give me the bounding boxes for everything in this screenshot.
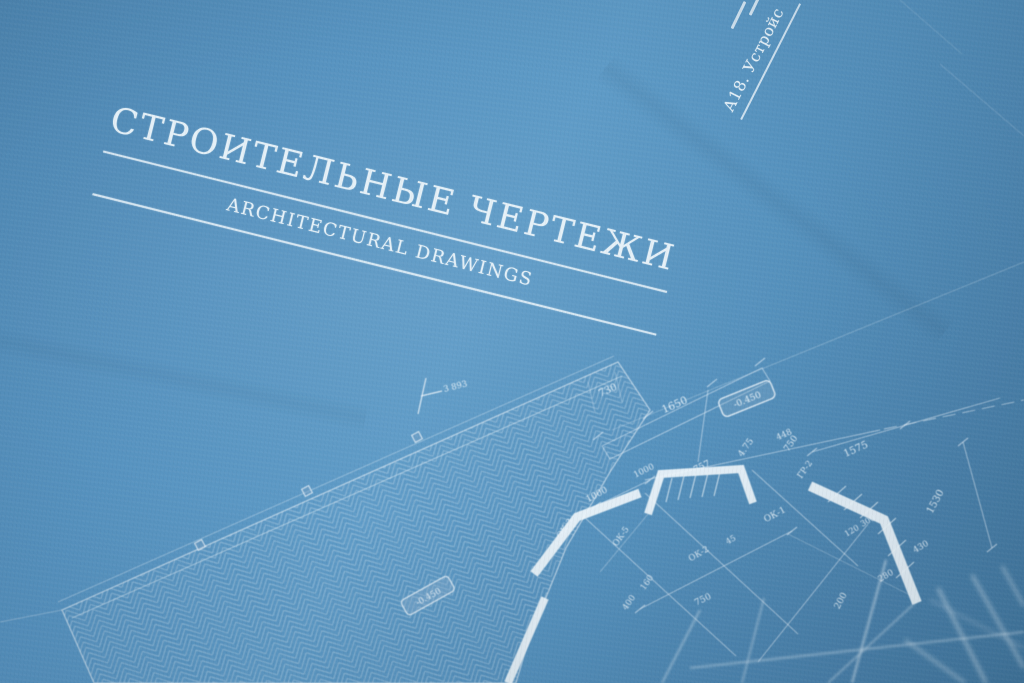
walls: [508, 469, 917, 683]
spot-elevation-label: 3 893: [442, 379, 468, 395]
svg-text:1575: 1575: [842, 440, 870, 460]
svg-text:430: 430: [911, 539, 930, 556]
svg-text:1000: 1000: [585, 485, 610, 505]
svg-text:ОК-2: ОК-2: [687, 544, 711, 564]
svg-text:300: 300: [859, 513, 877, 528]
svg-text:ГР-2: ГР-2: [796, 459, 815, 481]
dimension-labels: 730 1650 757 4.75 750 ГР-2 448 1575 1530…: [555, 379, 947, 612]
blurred-streaks: [905, 566, 1024, 683]
elevation-badge-slab: -0.450: [400, 575, 455, 616]
svg-text:730: 730: [597, 382, 619, 400]
svg-text:45: 45: [724, 533, 737, 546]
svg-text:400: 400: [621, 593, 639, 612]
svg-text:280: 280: [876, 568, 895, 585]
spot-elevation-marker: [418, 378, 442, 414]
svg-text:757: 757: [692, 459, 712, 476]
svg-text:750: 750: [693, 592, 713, 609]
svg-text:ОК-1: ОК-1: [763, 505, 788, 525]
svg-text:ОК-5: ОК-5: [611, 525, 632, 549]
svg-text:-0.450: -0.450: [414, 586, 443, 608]
svg-text:750: 750: [782, 434, 800, 454]
dimension-ticks: [591, 358, 997, 613]
blueprint-photo: -0.450 3 893: [0, 0, 1024, 683]
svg-text:160: 160: [639, 573, 657, 592]
elevation-badge-chain: -0.450: [717, 379, 776, 418]
svg-text:ОК-3: ОК-3: [555, 517, 576, 541]
paper-crease: [0, 248, 383, 502]
svg-text:200: 200: [833, 591, 850, 611]
svg-text:1530: 1530: [925, 488, 947, 516]
svg-text:-0.450: -0.450: [732, 390, 763, 410]
room-lines: [583, 470, 868, 662]
svg-text:4.75: 4.75: [737, 437, 757, 459]
svg-text:448: 448: [775, 427, 794, 443]
svg-text:1650: 1650: [660, 394, 689, 416]
svg-text:120: 120: [843, 523, 861, 538]
soft-mid-lines: [662, 560, 1024, 683]
window-hatch-bars: [666, 472, 914, 578]
svg-text:1000: 1000: [632, 462, 656, 480]
paper-crease: [519, 0, 1024, 443]
